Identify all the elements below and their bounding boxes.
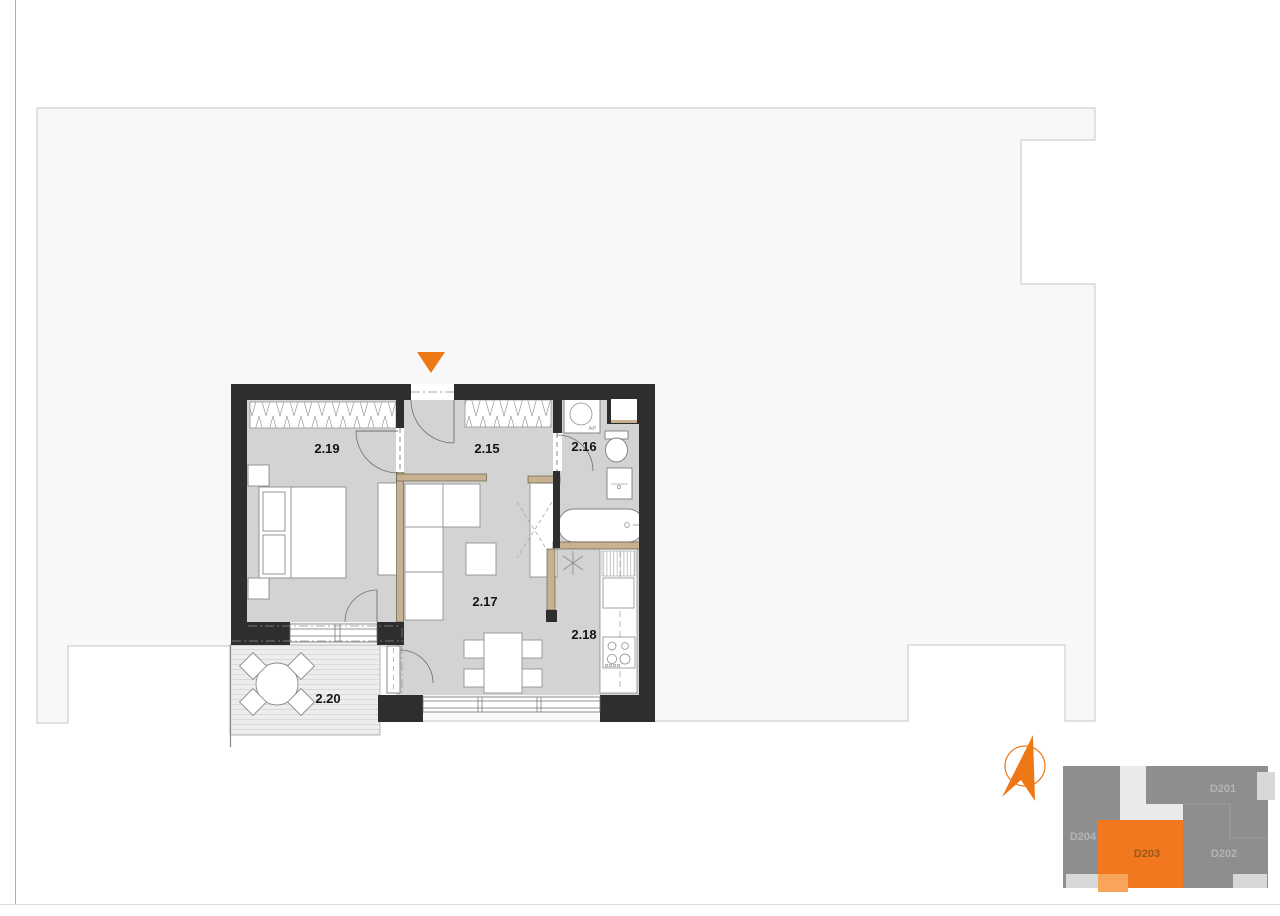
keyplan: D201 D204 D203 D202 bbox=[1063, 766, 1275, 892]
pillow bbox=[263, 535, 285, 574]
floor-plan-drawing: AP bbox=[0, 0, 1280, 916]
bathroom-sink bbox=[607, 468, 632, 499]
keyplan-balcony-bottom-right bbox=[1233, 874, 1267, 888]
wall-bath-top bbox=[553, 400, 562, 433]
wall-living-bottom-left bbox=[378, 695, 423, 722]
keyplan-label-d204: D204 bbox=[1070, 831, 1097, 843]
hall-closet-hatch bbox=[465, 400, 551, 427]
bathtub bbox=[559, 509, 643, 542]
shaft-inner bbox=[611, 399, 637, 420]
sofa-side bbox=[405, 527, 443, 620]
partition-bath-kitchen bbox=[553, 542, 648, 549]
shaft-bottom-strip bbox=[611, 420, 637, 423]
pillow bbox=[263, 492, 285, 531]
bedroom-window bbox=[290, 624, 377, 642]
keyplan-balcony-left bbox=[1066, 874, 1098, 888]
dining-chair bbox=[464, 640, 484, 658]
wall-left bbox=[231, 384, 247, 645]
keyplan-core-notch-v bbox=[1120, 766, 1146, 806]
wall-bedroom-door-post bbox=[396, 400, 404, 428]
north-arrow-needle bbox=[1002, 735, 1035, 801]
dining-chair bbox=[522, 669, 542, 687]
partition-living-kitchen bbox=[547, 549, 555, 610]
bedroom-wardrobe bbox=[378, 483, 397, 575]
keyplan-balcony-d203 bbox=[1098, 874, 1128, 892]
coffee-table bbox=[466, 543, 496, 575]
room-label-bathroom: 2.16 bbox=[571, 439, 596, 454]
keyplan-label-d203: D203 bbox=[1134, 848, 1160, 860]
living-window bbox=[423, 697, 600, 712]
wall-cap bbox=[546, 610, 557, 622]
nightstand bbox=[248, 465, 269, 486]
north-arrow-icon bbox=[1002, 735, 1045, 801]
floor-plan-page: AP bbox=[0, 0, 1280, 916]
keyplan-balcony-right bbox=[1257, 772, 1275, 800]
keyplan-label-d201: D201 bbox=[1210, 783, 1236, 795]
partition-hall-living bbox=[397, 474, 487, 481]
partition-bedroom-living bbox=[397, 472, 404, 622]
toilet-bowl bbox=[606, 438, 628, 462]
kitchen-appliance bbox=[603, 578, 634, 608]
wall-right bbox=[639, 384, 655, 722]
washing-machine-label: AP bbox=[589, 426, 597, 432]
dining-chair bbox=[464, 669, 484, 687]
room-label-hallway: 2.15 bbox=[474, 441, 499, 456]
wall-bath-lower bbox=[553, 471, 560, 548]
nightstand bbox=[248, 578, 269, 599]
bedroom-closet-hatch bbox=[250, 402, 396, 428]
terrace bbox=[230, 645, 380, 747]
room-label-terrace: 2.20 bbox=[315, 691, 340, 706]
stove bbox=[603, 637, 635, 668]
wall-pillar-terrace bbox=[377, 622, 404, 645]
wall-bedroom-bottom bbox=[231, 622, 290, 645]
keyplan-core-notch-h bbox=[1120, 804, 1183, 820]
dining-chair bbox=[522, 640, 542, 658]
dining-table bbox=[484, 633, 522, 693]
keyplan-label-d202: D202 bbox=[1211, 848, 1237, 860]
room-label-bedroom: 2.19 bbox=[314, 441, 339, 456]
sofa-top bbox=[405, 484, 480, 527]
installation-shaft bbox=[607, 395, 641, 424]
room-label-living: 2.17 bbox=[472, 594, 497, 609]
kitchen-drainer bbox=[602, 551, 635, 576]
wall-top-left bbox=[231, 384, 411, 400]
room-label-kitchen: 2.18 bbox=[571, 627, 596, 642]
wall-living-bottom-right bbox=[600, 695, 655, 722]
